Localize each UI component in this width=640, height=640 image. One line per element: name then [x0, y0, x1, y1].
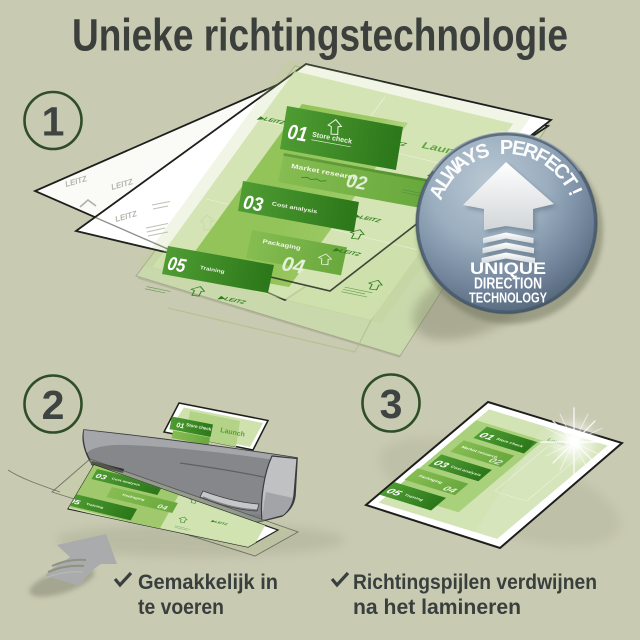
svg-text:04: 04 — [280, 253, 307, 279]
svg-text:te voeren: te voeren — [138, 595, 224, 619]
svg-text:2: 2 — [42, 382, 65, 428]
svg-text:1: 1 — [42, 99, 65, 145]
svg-text:TECHNOLOGY: TECHNOLOGY — [469, 290, 547, 307]
svg-text:01: 01 — [176, 422, 185, 430]
svg-text:3: 3 — [380, 381, 403, 427]
svg-text:Richtingspijlen verdwijnen: Richtingspijlen verdwijnen — [353, 570, 597, 594]
svg-text:03: 03 — [242, 190, 266, 216]
svg-text:na het lamineren: na het lamineren — [353, 595, 521, 619]
svg-text:Unieke richtingstechnologie: Unieke richtingstechnologie — [72, 10, 568, 61]
svg-text:02: 02 — [344, 169, 369, 194]
svg-text:Gemakkelijk in: Gemakkelijk in — [138, 570, 278, 594]
